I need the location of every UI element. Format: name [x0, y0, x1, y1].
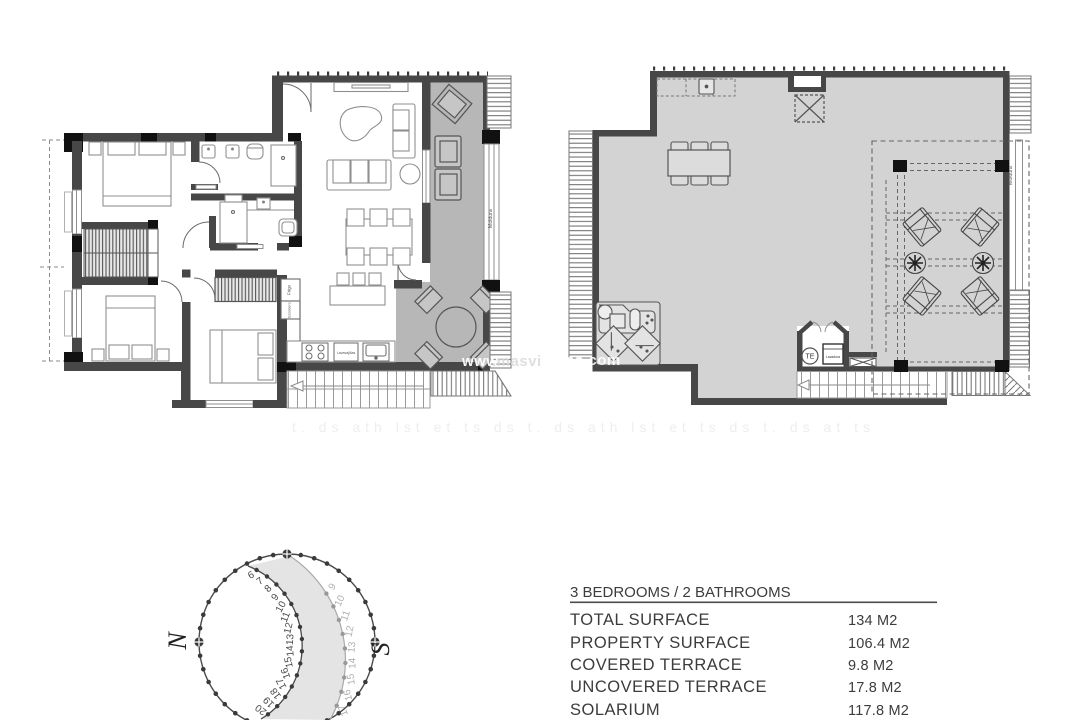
svg-text:Escobero: Escobero	[288, 302, 292, 317]
svg-text:Frigo: Frigo	[287, 284, 292, 295]
svg-text:Moldura: Moldura	[488, 209, 494, 228]
svg-text:3 BEDROOMS / 2 BATHROOMS: 3 BEDROOMS / 2 BATHROOMS	[570, 584, 791, 601]
svg-text:9.8 M2: 9.8 M2	[848, 658, 894, 674]
svg-text:TOTAL SURFACE: TOTAL SURFACE	[570, 611, 710, 629]
svg-text:13: 13	[346, 641, 358, 653]
svg-text:Lavavajillas: Lavavajillas	[337, 351, 356, 355]
svg-text:t. ds ath lst et ts ds t. ds a: t. ds ath lst et ts ds t. ds ath lst et …	[292, 419, 875, 435]
svg-text:.masvi: .masvi	[492, 353, 542, 370]
svg-text:UNCOVERED TERRACE: UNCOVERED TERRACE	[570, 678, 767, 696]
svg-text:SOLARIUM: SOLARIUM	[570, 701, 660, 719]
svg-text:TE: TE	[806, 354, 815, 361]
svg-text:117.8 M2: 117.8 M2	[848, 703, 909, 719]
svg-text:PROPERTY SURFACE: PROPERTY SURFACE	[570, 634, 751, 652]
svg-text:14: 14	[347, 657, 358, 669]
svg-text:17.8 M2: 17.8 M2	[848, 680, 902, 696]
svg-text:as.com: as.com	[566, 352, 621, 369]
svg-text:15: 15	[345, 673, 358, 686]
svg-text:106.4 M2: 106.4 M2	[848, 636, 910, 652]
svg-text:S: S	[366, 643, 395, 656]
svg-text:N: N	[163, 631, 192, 651]
svg-text:134 M2: 134 M2	[848, 613, 898, 629]
svg-text:Lavadora: Lavadora	[826, 355, 840, 359]
svg-text:COVERED TERRACE: COVERED TERRACE	[570, 656, 742, 674]
svg-text:14: 14	[285, 645, 297, 657]
svg-text:13: 13	[285, 633, 297, 645]
